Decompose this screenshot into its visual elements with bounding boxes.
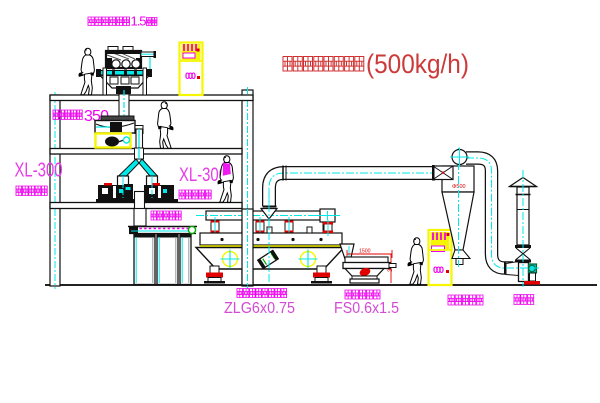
svg-text:FS0.6x1.5: FS0.6x1.5 [334,300,399,317]
svg-text:ZLG6x0.75: ZLG6x0.75 [224,300,295,317]
svg-text:1500: 1500 [359,249,371,255]
svg-text:000: 000 [185,71,196,81]
svg-text:(500kg/h): (500kg/h) [366,49,469,79]
svg-text:1.5: 1.5 [131,14,147,29]
svg-text:XL-300: XL-300 [15,158,63,181]
svg-text:000: 000 [433,265,444,275]
